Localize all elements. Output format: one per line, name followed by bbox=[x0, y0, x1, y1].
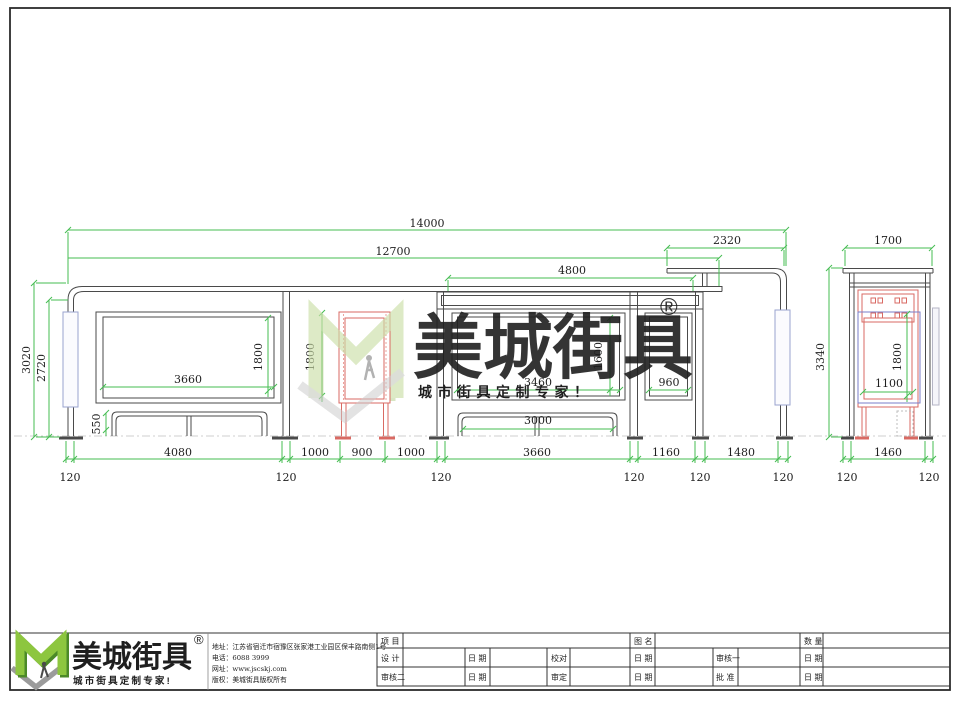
dim-bay2: 3660 bbox=[523, 446, 551, 459]
footer-address: 地址：江苏省宿迁市宿豫区张家港工业园区保丰路南侧1号 bbox=[212, 642, 386, 651]
dim-pole-6: 120 bbox=[773, 471, 794, 484]
side-elevation bbox=[841, 269, 939, 440]
dim-panel1-w: 3660 bbox=[174, 373, 202, 386]
side-roof bbox=[843, 269, 933, 274]
titleblock-proofread-label: 校对 bbox=[551, 653, 567, 663]
bench-1-mid-leg bbox=[187, 416, 191, 436]
dim-pole-3: 120 bbox=[431, 471, 452, 484]
dim-side-width: 1700 bbox=[874, 234, 902, 247]
watermark-tagline: 城市街具定制专家！ bbox=[418, 384, 594, 400]
dim-gap-right: 1000 bbox=[397, 446, 425, 459]
dim-pole-5: 120 bbox=[690, 471, 711, 484]
titleblock-date3-label: 日 期 bbox=[804, 654, 823, 663]
dim-pole-7: 120 bbox=[837, 471, 858, 484]
dim-side-height: 3340 bbox=[814, 343, 827, 371]
titleblock-date2-label: 日 期 bbox=[634, 654, 653, 663]
titleblock-reviewer2-label: 审核二 bbox=[381, 672, 405, 682]
title-block-row1-columns bbox=[403, 633, 823, 648]
titleblock-design-label: 设 计 bbox=[381, 653, 400, 663]
footer-copyright: 版权：美城街具版权所有 bbox=[212, 675, 287, 684]
titleblock-ratify-label: 批 准 bbox=[716, 672, 735, 682]
titleblock-date5-label: 日 期 bbox=[634, 673, 653, 682]
dim-pole-8: 120 bbox=[919, 471, 940, 484]
footer-registered-mark: ® bbox=[194, 632, 204, 647]
bench-1-inner bbox=[116, 416, 262, 436]
side-base-plates bbox=[841, 437, 933, 440]
base-plates bbox=[59, 437, 793, 440]
dim-bay4: 1480 bbox=[727, 446, 755, 459]
dim-bay3: 1160 bbox=[652, 446, 680, 459]
titleblock-date4-label: 日 期 bbox=[468, 673, 487, 682]
dim-panel1-h: 1800 bbox=[252, 343, 265, 371]
dim-bench-h: 550 bbox=[90, 414, 103, 435]
dim-height-total: 3020 bbox=[20, 346, 33, 374]
dim-gap-left: 1000 bbox=[301, 446, 329, 459]
footer-phone: 电话：6088 3999 bbox=[212, 653, 269, 662]
titleblock-reviewer1-label: 审核一 bbox=[716, 653, 740, 663]
titleblock-date6-label: 日 期 bbox=[804, 673, 823, 682]
footer-brand: 美城街具 bbox=[72, 640, 192, 674]
dim-pole-1: 120 bbox=[60, 471, 81, 484]
titleblock-quantity-label: 数 量 bbox=[804, 636, 823, 646]
side-sign-right bbox=[775, 310, 790, 405]
dim-side-base: 1460 bbox=[874, 446, 902, 459]
cad-canvas: 14000 12700 2320 4800 1700 3020 2720 334… bbox=[0, 0, 960, 704]
footer-tagline: 城市街具定制专家! bbox=[73, 675, 172, 687]
title-block-border bbox=[377, 633, 950, 686]
titleblock-project-label: 项 目 bbox=[381, 637, 400, 646]
titleblock-date1-label: 日 期 bbox=[468, 654, 487, 663]
title-block-row-lines bbox=[377, 648, 950, 667]
drawing-sheet: 14000 12700 2320 4800 1700 3020 2720 334… bbox=[0, 0, 960, 704]
dim-bench2-w: 3000 bbox=[524, 414, 552, 427]
dim-roof-main: 12700 bbox=[376, 245, 411, 258]
watermark-registered-mark: ® bbox=[660, 294, 678, 321]
watermark-brand: 美城街具 bbox=[413, 309, 693, 387]
side-header-lines bbox=[850, 283, 931, 287]
titleblock-approver-label: 审定 bbox=[551, 672, 567, 682]
side-sign-edge bbox=[933, 308, 940, 405]
brand-logo-icon bbox=[12, 640, 65, 687]
footer-website: 网址：www.jscskj.com bbox=[212, 664, 287, 673]
dim-bay1: 4080 bbox=[164, 446, 192, 459]
side-pedestal bbox=[897, 411, 913, 436]
pole-5 bbox=[696, 292, 704, 437]
dim-side-panel-w: 1100 bbox=[875, 377, 903, 390]
title-block: 项 目 图 名 数 量 设 计 日 期 校对 日 期 审核一 日 期 审核二 日… bbox=[377, 633, 950, 686]
dim-bin-w: 900 bbox=[352, 446, 373, 459]
dim-pole-4: 120 bbox=[624, 471, 645, 484]
dim-roof-ext: 2320 bbox=[713, 234, 741, 247]
dim-total-width: 14000 bbox=[410, 217, 445, 230]
pole-2 bbox=[283, 292, 290, 437]
side-sign-left bbox=[63, 312, 78, 407]
dim-sub-frame: 4800 bbox=[558, 264, 586, 277]
dim-side-panel-h: 1800 bbox=[891, 343, 904, 371]
titleblock-drawingname-label: 图 名 bbox=[634, 636, 653, 646]
dim-pole-2: 120 bbox=[276, 471, 297, 484]
dim-height-clear: 2720 bbox=[35, 354, 48, 382]
footer-contact: 地址：江苏省宿迁市宿豫区张家港工业园区保丰路南侧1号 电话：6088 3999 … bbox=[212, 642, 386, 684]
